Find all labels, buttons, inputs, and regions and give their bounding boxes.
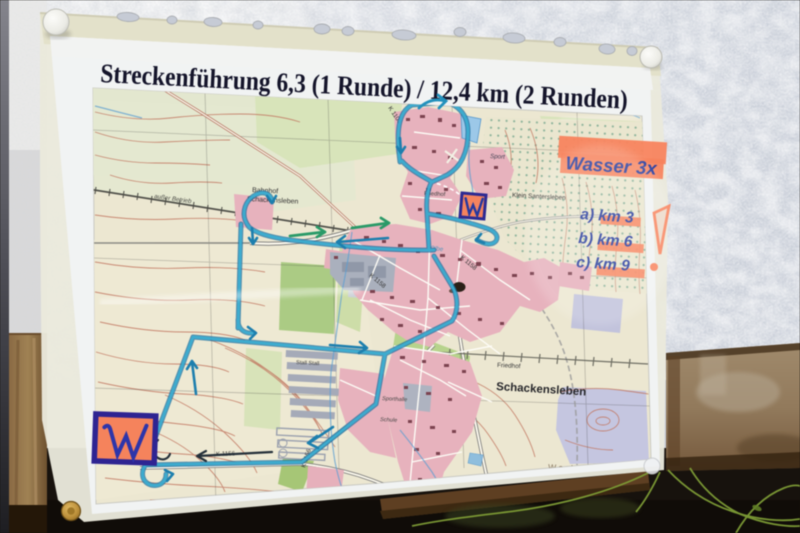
svg-text:Sport: Sport [490, 153, 505, 161]
svg-text:Friedhof: Friedhof [497, 362, 521, 370]
svg-text:Stall Stall: Stall Stall [296, 360, 320, 367]
svg-text:Schule: Schule [380, 417, 397, 424]
